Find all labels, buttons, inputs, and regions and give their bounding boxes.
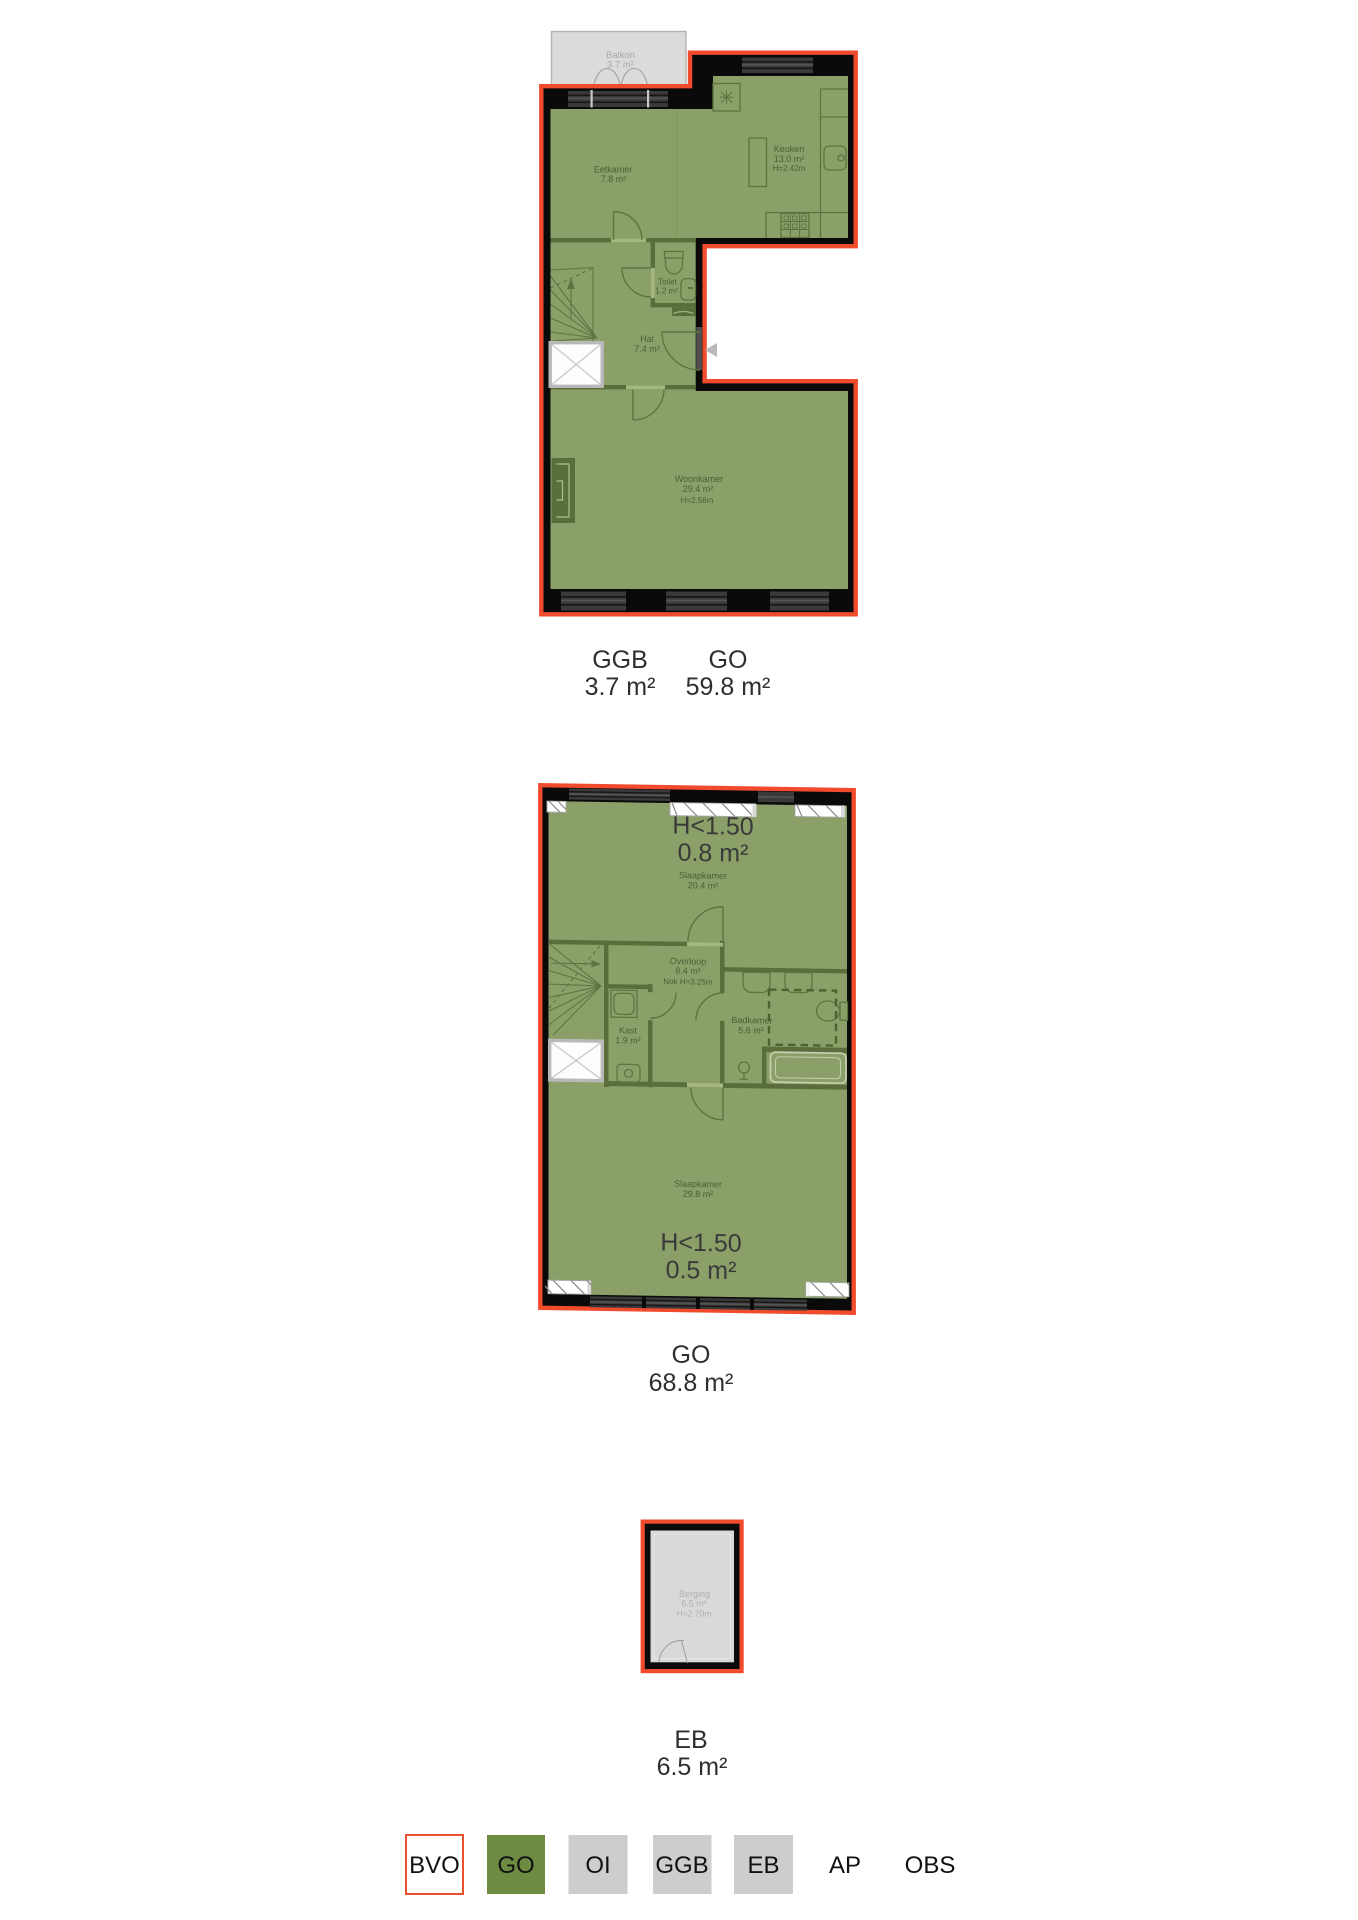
svg-text:5.6 m²: 5.6 m² [738,1025,764,1035]
svg-text:1.9 m²: 1.9 m² [615,1035,641,1045]
svg-text:H=2.42m: H=2.42m [773,164,806,173]
svg-text:OBS: OBS [905,1852,956,1879]
svg-text:Woonkamer: Woonkamer [675,474,723,484]
svg-text:13.0 m²: 13.0 m² [774,154,805,164]
svg-text:0.8 m²: 0.8 m² [678,839,749,868]
svg-text:7.8 m²: 7.8 m² [601,174,627,184]
svg-text:29.8 m²: 29.8 m² [683,1189,714,1199]
svg-text:OI: OI [585,1852,610,1879]
svg-text:GGB: GGB [592,646,648,674]
svg-text:H<1.50: H<1.50 [660,1228,741,1257]
svg-text:7.4 m²: 7.4 m² [634,344,660,354]
svg-text:EB: EB [747,1852,779,1879]
svg-text:20.4 m²: 20.4 m² [688,880,719,890]
svg-text:6.5 m²: 6.5 m² [681,1599,707,1609]
svg-text:Hal: Hal [640,334,654,344]
svg-text:59.8 m²: 59.8 m² [686,673,771,701]
svg-text:Eetkamer: Eetkamer [594,165,633,175]
svg-text:Badkamer: Badkamer [731,1015,772,1026]
svg-text:6.5 m²: 6.5 m² [657,1753,728,1781]
svg-text:Slaapkamer: Slaapkamer [679,870,727,881]
svg-text:Berging: Berging [679,1589,710,1599]
svg-text:Keuken: Keuken [774,144,805,154]
svg-text:8.4 m²: 8.4 m² [675,966,701,976]
svg-text:GO: GO [672,1341,711,1369]
svg-text:H<1.50: H<1.50 [672,812,753,841]
svg-text:GO: GO [709,646,748,674]
svg-text:Toilet: Toilet [658,278,677,287]
svg-text:0.5 m²: 0.5 m² [666,1256,737,1285]
svg-text:3.7 m²: 3.7 m² [585,673,656,701]
svg-text:68.8 m²: 68.8 m² [649,1369,734,1397]
svg-text:29.4 m²: 29.4 m² [683,484,714,494]
svg-text:H=2.70m: H=2.70m [677,1609,712,1619]
svg-text:H=2.56m: H=2.56m [681,496,714,505]
svg-text:GGB: GGB [655,1852,708,1879]
svg-text:Nok H=3.25m: Nok H=3.25m [663,977,712,987]
svg-text:Slaapkamer: Slaapkamer [674,1179,722,1190]
svg-text:AP: AP [829,1852,861,1879]
svg-text:EB: EB [674,1726,707,1754]
svg-text:BVO: BVO [409,1852,460,1879]
svg-text:1.2 m²: 1.2 m² [655,287,678,296]
svg-text:GO: GO [497,1852,534,1879]
svg-text:Kast: Kast [619,1025,638,1035]
